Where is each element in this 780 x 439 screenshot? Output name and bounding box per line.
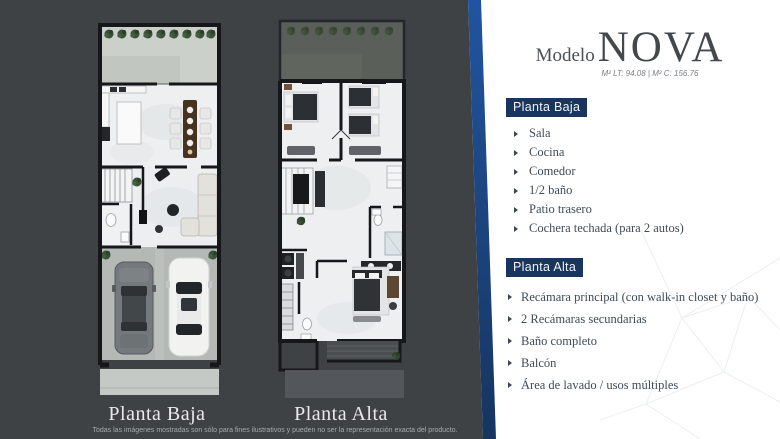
- bullet-icon: [514, 169, 518, 175]
- bullet-icon: [514, 131, 518, 137]
- list-item: Cochera techada (para 2 autos): [510, 219, 684, 238]
- bullet-icon: [514, 188, 518, 194]
- walk-in-closet: [281, 284, 293, 330]
- dark-background-panel: [0, 0, 500, 439]
- list-item: Comedor: [510, 162, 684, 181]
- model-title: Modelo NOVA: [505, 26, 755, 69]
- model-title-name: NOVA: [598, 26, 725, 69]
- model-title-prefix: Modelo: [536, 45, 595, 67]
- floorplan-planta-alta: [277, 18, 407, 400]
- bullet-icon: [508, 294, 512, 300]
- list-item: Sala: [510, 124, 684, 143]
- bullet-icon: [508, 316, 512, 322]
- half-bath: [100, 204, 131, 245]
- list-item: Cocina: [510, 143, 684, 162]
- planta-baja-feature-list: Sala Cocina Comedor 1/2 baño Patio trase…: [510, 124, 684, 238]
- list-item: 2 Recámaras secundarias: [508, 308, 758, 330]
- section-heading-planta-alta: Planta Alta: [506, 258, 583, 277]
- list-item: Balcón: [508, 352, 758, 374]
- bullet-icon: [514, 226, 518, 232]
- bullet-icon: [514, 207, 518, 213]
- bullet-icon: [508, 360, 512, 366]
- planta-alta-feature-list: Recámara principal (con walk-in closet y…: [508, 286, 758, 396]
- list-item: Patio trasero: [510, 200, 684, 219]
- list-item: Baño completo: [508, 330, 758, 352]
- balcony: [327, 341, 400, 361]
- car-white: [166, 258, 212, 356]
- stairs: [100, 169, 132, 202]
- model-specs: M² LT: 94.08 | M² C: 156.76: [575, 69, 725, 78]
- section-heading-planta-baja: Planta Baja: [506, 98, 587, 117]
- laundry-area: [280, 250, 307, 279]
- bullet-icon: [508, 382, 512, 388]
- list-item: Recámara principal (con walk-in closet y…: [508, 286, 758, 308]
- plan-label-planta-alta: Planta Alta: [276, 403, 406, 426]
- slide: Planta Baja Planta Alta Todas las imágen…: [0, 0, 780, 439]
- disclaimer-text: Todas las imágenes mostradas son sólo pa…: [60, 427, 490, 434]
- floorplan-planta-baja: [97, 22, 222, 397]
- car-gray: [112, 262, 156, 354]
- list-item: 1/2 baño: [510, 181, 684, 200]
- bullet-icon: [508, 338, 512, 344]
- patio-plants: [104, 30, 215, 39]
- plan-label-planta-baja: Planta Baja: [92, 403, 222, 426]
- list-item: Área de lavado / usos múltiples: [508, 374, 758, 396]
- bullet-icon: [514, 150, 518, 156]
